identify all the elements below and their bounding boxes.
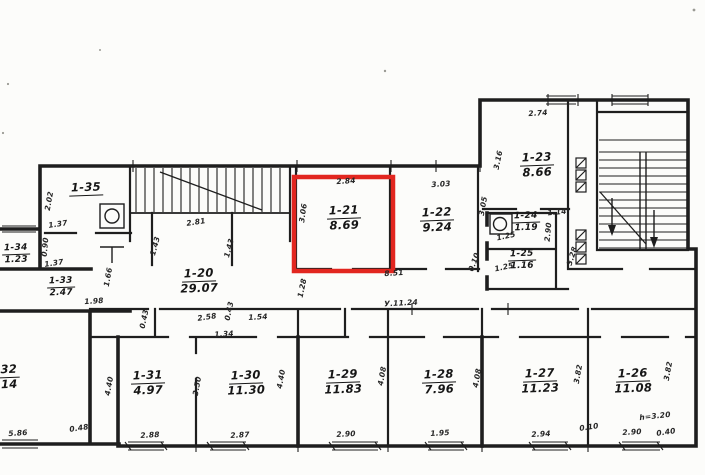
room-label-1-35: 1-35 (69, 180, 103, 196)
room-area: 4.97 (131, 383, 165, 397)
dimension-label: 2.88 (140, 430, 160, 440)
room-label-1-29: 1-2911.83 (324, 367, 363, 396)
room-area: 8.66 (520, 165, 554, 179)
room-area: 11.30 (227, 383, 265, 397)
dimension-label: 2.90 (336, 429, 356, 439)
room-label-1-34: 1-341.23 (2, 243, 30, 266)
room-label-1-31: 1-314.97 (131, 368, 166, 397)
room-label-1-28: 1-287.96 (422, 367, 457, 396)
right-staircase (599, 140, 687, 250)
scan-specks (2, 9, 695, 134)
room-number: 1-24 (512, 211, 540, 224)
room-label-1-20: 1-2029.07 (180, 266, 219, 295)
room-area: 1.16 (508, 261, 536, 272)
dimension-label: 2.94 (531, 429, 551, 439)
room-area: 7.96 (422, 382, 456, 396)
room-label-1-21[interactable]: 1-218.69 (327, 203, 362, 232)
stair-direction-arrow (608, 225, 616, 236)
dimension-label: У.11.24 (384, 298, 418, 309)
dimension-label: 2.90 (622, 427, 642, 437)
room-area: 11.23 (521, 381, 559, 395)
dimension-label: 1.98 (84, 296, 104, 306)
room-area: 1.19 (512, 223, 540, 234)
room-label-1-24: 1-241.19 (512, 211, 540, 234)
room-number: 1-25 (508, 249, 536, 262)
room-label-1-27: 1-2711.23 (521, 366, 560, 395)
floor-plan-drawing (0, 0, 705, 475)
dimension-label: 3.03 (431, 179, 451, 189)
room-number: 1-35 (69, 180, 103, 196)
room-area: 2.47 (47, 288, 75, 299)
room-label-1-25: 1-251.16 (508, 249, 536, 272)
tub-fixture-icon (100, 247, 124, 263)
room-area: 9.24 (420, 220, 454, 234)
room-label-1-30: 1-3011.30 (227, 368, 266, 397)
dimension-label: 0.90 (40, 237, 51, 257)
room-area: 14 (0, 378, 20, 392)
dimension-label: 8.51 (384, 268, 404, 278)
room-label-1-23: 1-238.66 (520, 150, 555, 179)
dimension-label: 5.86 (8, 428, 28, 438)
dimension-label: 2.90 (543, 222, 554, 242)
dimension-label: 2.74 (528, 108, 548, 118)
sink-fixture-icon (100, 204, 124, 228)
dimension-label: 1.95 (430, 428, 450, 438)
dimension-label: 1.54 (248, 312, 268, 322)
dimension-label: 2.87 (230, 430, 250, 440)
dimension-label: 1.14 (547, 207, 567, 218)
left-staircase (130, 168, 290, 213)
floor-plan-canvas: 1-351-341.231-332.471-2029.071-218.691-2… (0, 0, 705, 475)
room-label-1-22: 1-229.24 (420, 205, 455, 234)
room-area: 11.08 (614, 381, 652, 395)
dimension-label: 1.34 (214, 329, 234, 339)
room-number: 1-34 (2, 243, 30, 256)
room-area: 1.23 (2, 255, 30, 266)
stair-direction-arrow (650, 237, 658, 248)
room-label-1-33: 1-332.47 (47, 276, 75, 299)
room-area: 8.69 (327, 218, 361, 232)
room-label-1-32: 3214 (0, 363, 20, 391)
room-number: 1-33 (47, 276, 75, 289)
room-label-1-26: 1-2611.08 (614, 366, 653, 395)
room-area: 29.07 (180, 281, 218, 295)
dimension-label: 2.84 (336, 176, 356, 186)
room-area: 11.83 (324, 382, 362, 396)
